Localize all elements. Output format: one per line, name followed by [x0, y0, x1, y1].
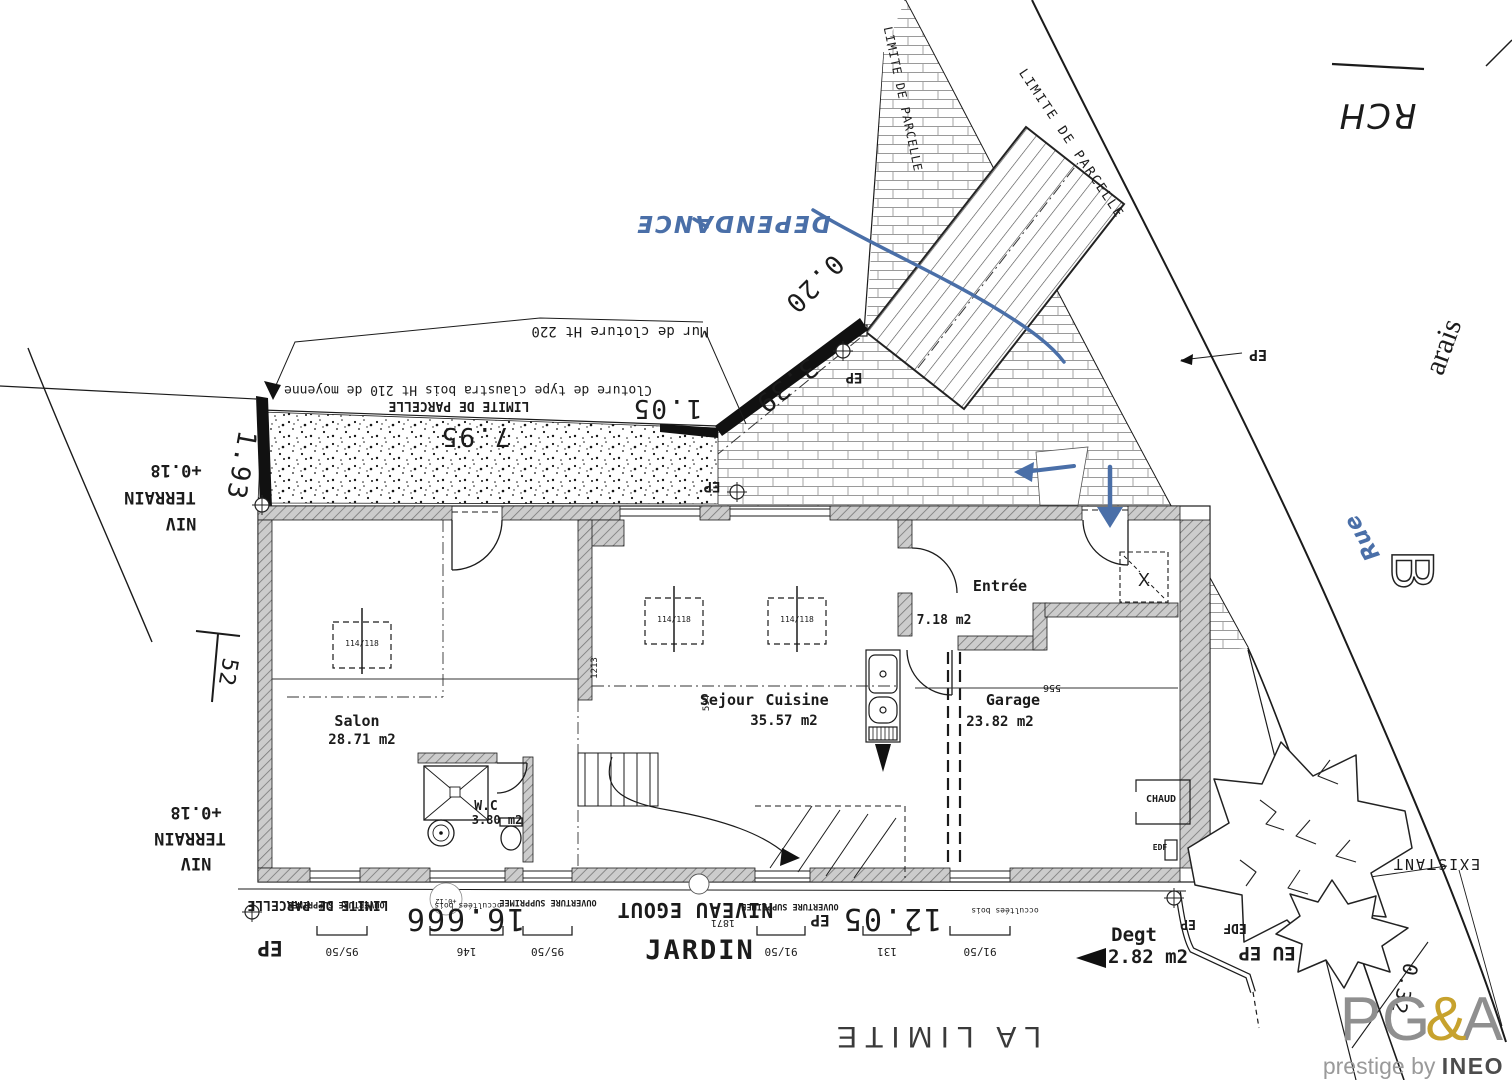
label-sejour_area: 35.57 m2: [750, 713, 817, 729]
label-ob2: occultées bois: [971, 906, 1039, 916]
label-ep1: EP: [846, 369, 863, 385]
label-d1871: 1871: [711, 917, 735, 928]
label-salon_area: 28.71 m2: [328, 732, 395, 748]
degt-arrow: [1076, 948, 1106, 968]
label-os1: OUVERTURE SUPPRIMEE: [287, 899, 384, 909]
label-ep4: EP: [257, 936, 282, 960]
dim-bracket: [317, 926, 367, 935]
label-rch: RCH: [1338, 95, 1417, 135]
dim-label: 95/50: [531, 945, 564, 958]
logo: PG&A prestige by INEO: [1323, 989, 1504, 1078]
label-entree: Entrée: [973, 577, 1027, 595]
label-os2: OUVERTURE SUPPRIMEE: [499, 897, 596, 907]
label-ep2: EP: [704, 478, 721, 494]
dim-bracket: [757, 926, 805, 935]
dim-bracket: [523, 926, 572, 935]
label-rw3: 114/118: [780, 615, 814, 624]
label-lp_fence: LIMITE DE PARCELLE: [389, 398, 530, 413]
top-right-corner-line: [1486, 40, 1512, 66]
label-la_limite: LA LIMITE: [829, 1020, 1041, 1053]
logo-brand: INEO: [1442, 1053, 1504, 1079]
main-building: [258, 506, 1210, 915]
label-garage_area: 23.82 m2: [966, 714, 1033, 730]
label-ep5: EP: [810, 911, 829, 930]
label-cloture_claustra: Cloture de type claustra bois Ht 210 de …: [284, 382, 652, 397]
label-edf_b: EDF: [1223, 920, 1247, 935]
top-left-boundary: [0, 386, 256, 399]
label-existant: EXISTANT: [1392, 855, 1480, 873]
logo-tagline: prestige by INEO: [1323, 1055, 1504, 1078]
dim-label: 131: [877, 945, 897, 958]
label-degt_area: 2.82 m2: [1108, 946, 1188, 968]
label-xmark: X: [1138, 570, 1150, 590]
logo-ampersand: &: [1425, 985, 1467, 1054]
label-d1205: 12.05: [842, 901, 942, 936]
label-edf_g: EDF: [1153, 843, 1168, 852]
label-d556: 556: [1043, 682, 1061, 693]
label-niv_t2: TERRAIN: [124, 487, 196, 507]
label-arais: arais: [1418, 314, 1468, 379]
label-rw1: 114/118: [345, 639, 379, 648]
logo-tagline-text: prestige by: [1323, 1053, 1442, 1079]
tree-blob-small: [1276, 880, 1408, 988]
label-salon: Salon: [334, 712, 379, 730]
dim-label: 146: [457, 945, 477, 958]
label-ep6: EP: [1180, 916, 1196, 931]
label-eu_ep: EU EP: [1238, 942, 1295, 964]
label-degt: Degt: [1111, 924, 1157, 946]
dim-label: 95/50: [325, 945, 358, 958]
plan-drawing: 95/5014695/5091/5013191/50 RCHaraisRueBD…: [0, 0, 1512, 1080]
dim-label: 91/50: [764, 945, 797, 958]
label-os3: OUVERTURE SUPPRIMEE: [741, 901, 838, 911]
label-wc: W.C: [474, 799, 497, 814]
label-wc_area: 3.80 m2: [472, 813, 523, 827]
label-b_letter: B: [1379, 550, 1446, 590]
label-rw2: 114/118: [657, 615, 691, 624]
label-d52: 52: [213, 656, 243, 688]
label-entree_area: 7.18 m2: [917, 613, 972, 628]
label-jardin: JARDIN: [645, 935, 755, 966]
label-d594: 594: [702, 695, 712, 711]
rch-overline: [1332, 64, 1424, 69]
logo-pg: PG: [1340, 985, 1432, 1054]
label-d1213: 1213: [590, 657, 600, 679]
fence-leader-arrowhead: [264, 381, 281, 400]
label-d020: 0.20: [778, 248, 849, 319]
label-ep3: EP: [1249, 346, 1267, 364]
floor-plan-sheet: 95/5014695/5091/5013191/50 RCHaraisRueBD…: [0, 0, 1512, 1080]
label-d193: 1.93: [220, 428, 262, 503]
wall-leader-line: [705, 331, 746, 424]
label-niv_b1: NIV: [181, 853, 212, 873]
label-garage: Garage: [986, 691, 1040, 709]
label-niv_b3: +0.18: [170, 802, 221, 822]
trees: [1188, 742, 1412, 988]
label-rue: Rue: [1339, 510, 1385, 565]
wall-bump: [689, 874, 709, 894]
label-p012: +0.12: [435, 897, 456, 905]
label-d105: 1.05: [632, 393, 703, 423]
bottom-site-line: [238, 889, 1186, 891]
label-cuisine: Cuisine: [765, 691, 828, 709]
label-niv_t1: NIV: [166, 513, 197, 533]
label-niv_t3: +0.18: [150, 460, 201, 480]
label-mur_cloture: Mur de cloture Ht 220: [531, 323, 708, 339]
dim-label: 91/50: [963, 945, 996, 958]
logo-wordmark: PG&A: [1323, 989, 1504, 1051]
label-chaud: CHAUD: [1146, 794, 1176, 805]
label-niv_b2: TERRAIN: [154, 828, 226, 848]
label-dependance: DEPENDANCE: [635, 210, 830, 236]
label-d795: 7.95: [440, 421, 511, 451]
dim-bracket: [950, 926, 1010, 935]
